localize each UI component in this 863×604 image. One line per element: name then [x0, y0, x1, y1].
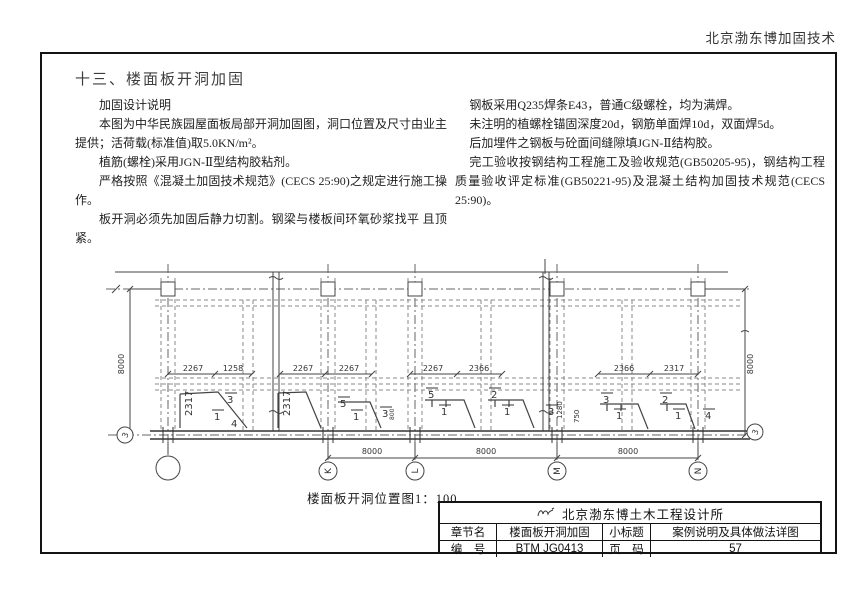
notes-left-column: 加固设计说明 本图为中华民族园屋面板局部开洞加固图，洞口位置及尺寸由业主提供；活… [75, 96, 447, 248]
opening-mark: 1 [616, 411, 622, 422]
company-name: 北京渤东博土木工程设计所 [562, 504, 724, 523]
floor-plan-svg: 2267 1258 2267 2267 2267 2366 2366 2317 … [100, 252, 770, 487]
floor-plan-drawing: 2267 1258 2267 2267 2267 2366 2366 2317 … [100, 252, 770, 487]
opening-mark: 4 [705, 411, 711, 422]
dim-label: 2267 [423, 364, 443, 373]
number-value: BTM JG0413 [497, 541, 603, 557]
opening-mark: 3 [548, 407, 554, 418]
title-block-company-row: 北京渤东博土木工程设计所 [440, 503, 820, 524]
opening-mark: 1 [675, 411, 681, 422]
opening-mark: 5 [428, 390, 434, 401]
v-dim-right: 8000 [746, 354, 755, 374]
dim-label: 2366 [614, 364, 634, 373]
opening-mark: 1 [441, 407, 447, 418]
drawing-caption: 楼面板开洞位置图1：100 [307, 488, 458, 507]
opening-mark: 2317 [184, 391, 195, 416]
subtitle-value: 案例说明及具体做法详图 [651, 524, 820, 540]
opening-mark: 1 [353, 412, 359, 423]
span-dim-label: 8000 [476, 447, 496, 456]
dimension-labels: 2267 1258 2267 2267 2267 2366 2366 2317 … [117, 354, 755, 456]
chapter-value: 楼面板开洞加固 [497, 524, 603, 540]
opening-mark: 3 [227, 395, 233, 406]
axis-bubble-empty [156, 456, 180, 480]
axis-bubble-label: L [411, 468, 421, 473]
opening-mark: 1280 [556, 401, 564, 419]
note-paragraph: 完工验收按钢结构工程施工及验收规范(GB50205-95)，钢结构工程质量验收评… [455, 153, 825, 210]
opening-mark: 5 [340, 399, 346, 410]
page-value: 57 [651, 541, 820, 557]
section-title: 十三、楼面板开洞加固 [75, 68, 245, 89]
dim-label: 2267 [183, 364, 203, 373]
content-frame: 十三、楼面板开洞加固 加固设计说明 本图为中华民族园屋面板局部开洞加固图，洞口位… [40, 52, 837, 554]
opening-mark: 3 [603, 395, 609, 406]
note-paragraph: 后加埋件之钢板与砼面间缝隙填JGN-Ⅱ结构胶。 [455, 134, 825, 153]
dim-label: 2267 [293, 364, 313, 373]
company-logo-icon [536, 507, 556, 519]
opening-mark: 800 [389, 408, 396, 420]
opening-mark: 1 [504, 407, 510, 418]
page-label: 页 码 [603, 541, 651, 557]
opening-mark: 2 [491, 390, 497, 401]
opening-mark: 2317 [282, 391, 293, 416]
page-header-company: 北京渤东博加固技术 [706, 27, 837, 47]
chapter-label: 章节名 [440, 524, 497, 540]
axis-bubble-label: M [553, 467, 563, 475]
dim-label: 2366 [469, 364, 489, 373]
opening-mark: 4 [231, 419, 237, 430]
note-paragraph: 钢板采用Q235焊条E43，普通C级螺栓，均为满焊。 [455, 96, 825, 115]
title-block-row-2: 编 号 BTM JG0413 页 码 57 [440, 540, 820, 557]
opening-mark: 1 [214, 412, 220, 423]
note-paragraph: 植筋(螺栓)采用JGN-Ⅱ型结构胶粘剂。 [75, 153, 447, 172]
dim-label: 2317 [664, 364, 684, 373]
note-paragraph: 未注明的植螺栓锚固深度20d，钢筋单面焊10d，双面焊5d。 [455, 115, 825, 134]
title-block-row-1: 章节名 楼面板开洞加固 小标题 案例说明及具体做法详图 [440, 524, 820, 540]
title-block: 北京渤东博土木工程设计所 章节名 楼面板开洞加固 小标题 案例说明及具体做法详图… [438, 501, 822, 554]
opening-mark: 750 [573, 410, 581, 423]
notes-right-column: 钢板采用Q235焊条E43，普通C级螺栓，均为满焊。 未注明的植螺栓锚固深度20… [455, 96, 825, 210]
span-dim-label: 8000 [362, 447, 382, 456]
axis-bubble-label: N [694, 468, 704, 475]
dim-label: 1258 [223, 364, 243, 373]
subtitle-label: 小标题 [603, 524, 651, 540]
note-paragraph: 板开洞必须先加固后静力切割。钢梁与楼板间环氧砂浆找平 且顶紧。 [75, 210, 447, 248]
opening-mark: 2 [662, 395, 668, 406]
opening-mark: 3 [382, 409, 388, 420]
note-paragraph: 严格按照《混凝土加固技术规范》(CECS 25:90)之规定进行施工操作。 [75, 172, 447, 210]
span-dim-label: 8000 [618, 447, 638, 456]
number-label: 编 号 [440, 541, 497, 557]
notes-heading: 加固设计说明 [75, 96, 447, 115]
note-paragraph: 本图为中华民族园屋面板局部开洞加固图，洞口位置及尺寸由业主提供；活荷载(标准值)… [75, 115, 447, 153]
v-dim-left: 8000 [117, 354, 126, 374]
dim-label: 2267 [339, 364, 359, 373]
